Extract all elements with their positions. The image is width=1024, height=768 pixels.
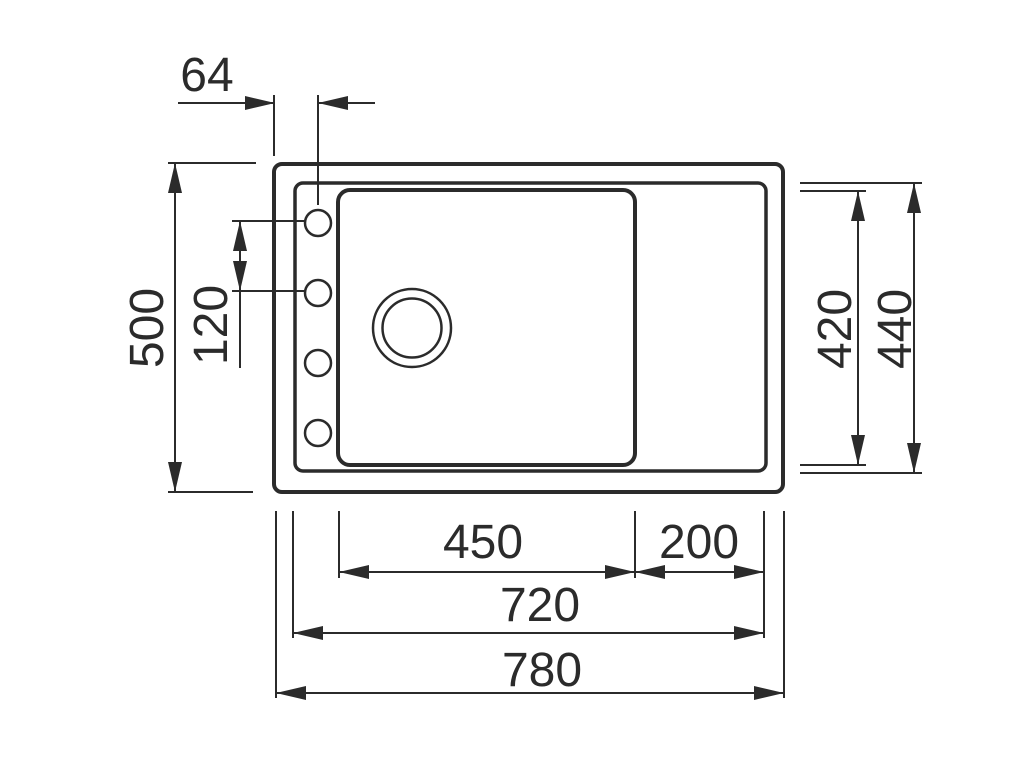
tap-hole-4 <box>305 420 331 446</box>
tap-hole-1 <box>305 210 331 236</box>
dim-label-hole-pitch: 120 <box>185 285 238 365</box>
dim-label-hole-offset: 64 <box>180 49 233 102</box>
dim-420-bowl-depth: 420 <box>800 191 866 465</box>
drain-hole <box>373 289 451 367</box>
dim-120-hole-pitch: 120 <box>185 221 304 368</box>
dim-label-overall-depth: 500 <box>121 288 174 368</box>
drain-inner-ring <box>383 299 442 358</box>
dim-label-bowl-depth: 420 <box>809 289 862 369</box>
dim-450-bowl-width: 450 <box>339 516 635 572</box>
sink-dimension-drawing: 64 500 120 420 440 <box>0 0 1024 768</box>
drain-outer-ring <box>373 289 451 367</box>
drawing-canvas: 64 500 120 420 440 <box>0 0 1024 768</box>
dim-label-drainer-width: 200 <box>659 516 739 569</box>
sink-outer-edge <box>274 164 783 492</box>
dim-label-rim-width: 720 <box>500 579 580 632</box>
dim-label-overall-width: 780 <box>502 644 582 697</box>
dim-label-bowl-width: 450 <box>443 516 523 569</box>
dim-200-drainer-width: 200 <box>635 516 764 572</box>
tap-hole-2 <box>305 280 331 306</box>
tap-hole-3 <box>305 350 331 376</box>
sink-inner-rim <box>295 183 766 471</box>
dim-label-rim-depth: 440 <box>869 289 922 369</box>
sink-outline <box>274 164 783 492</box>
dim-720-rim-width: 720 <box>293 579 764 633</box>
dim-780-overall-width: 780 <box>276 644 784 697</box>
tap-holes <box>305 210 331 446</box>
